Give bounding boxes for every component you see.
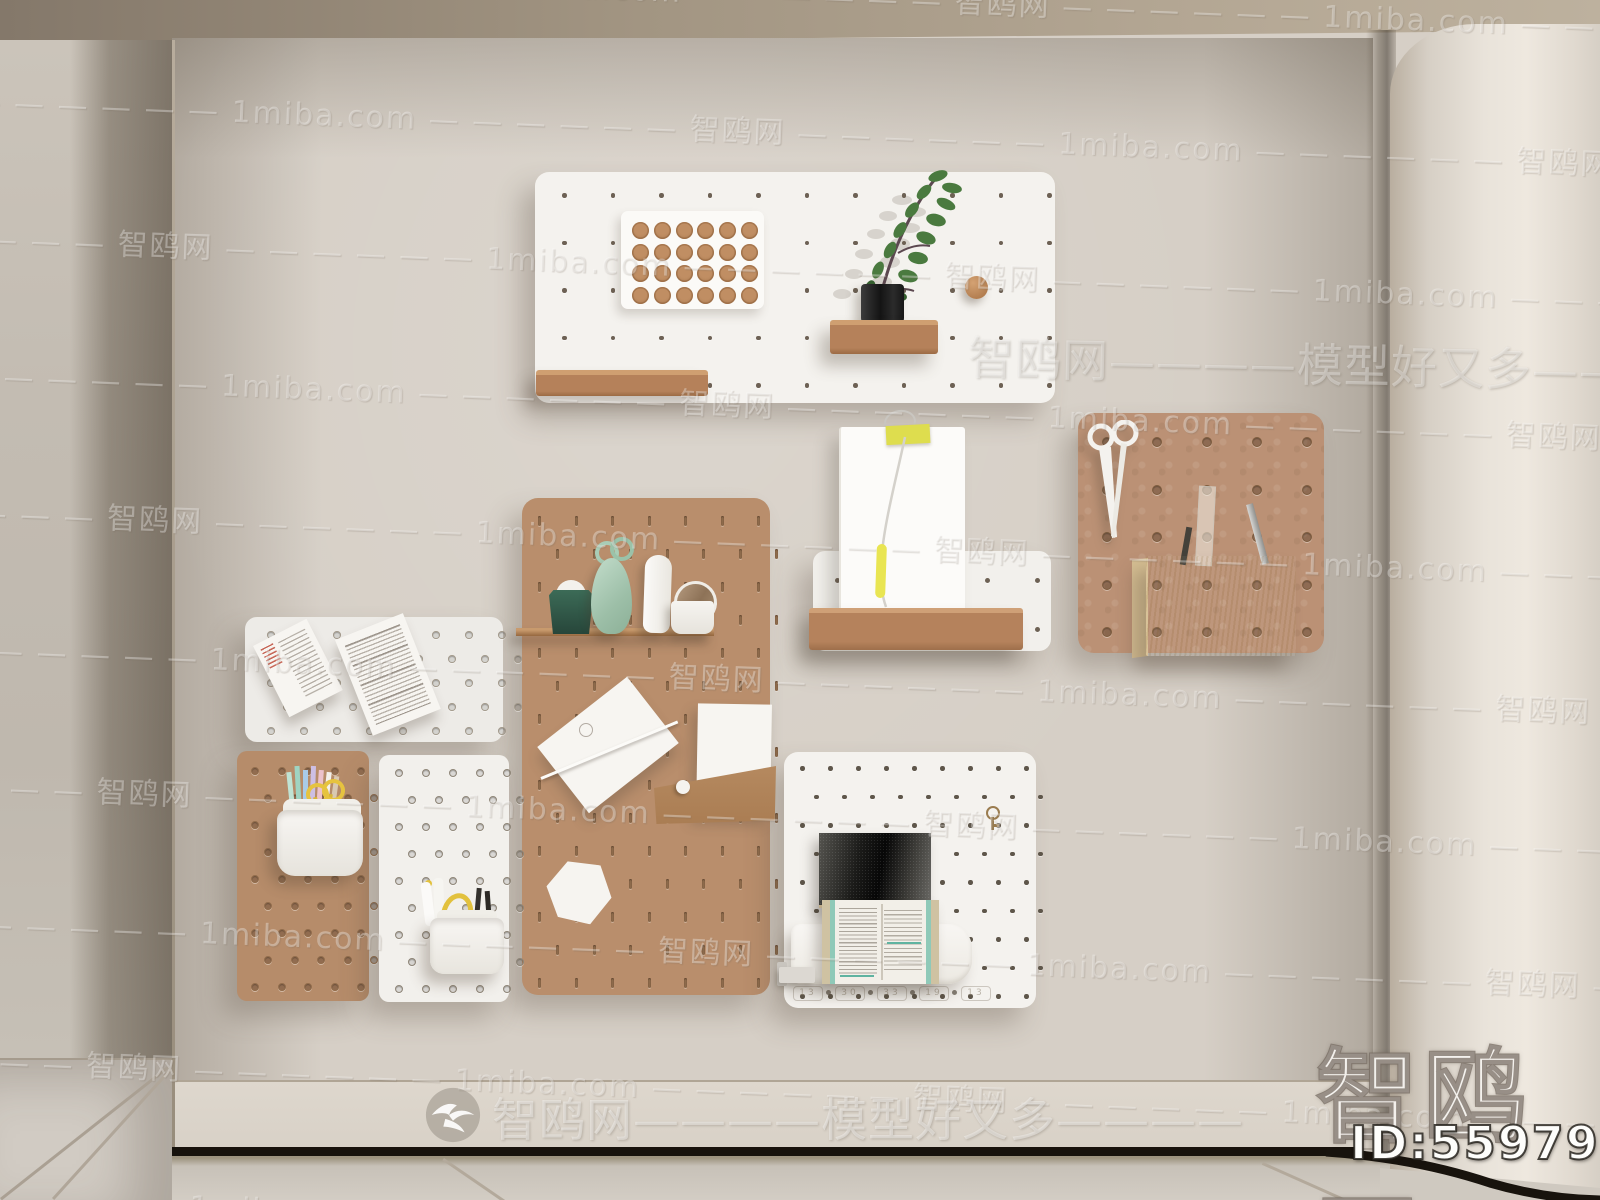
key-tooth	[994, 824, 999, 827]
key-hook	[986, 806, 1000, 834]
slot-pill-2: 30	[835, 986, 865, 1001]
white-gadget	[643, 555, 673, 634]
slot-pill-5: 13	[961, 986, 991, 1001]
open-book	[822, 900, 939, 984]
plant-pot	[861, 284, 904, 325]
slot-pill-4: 19	[919, 986, 949, 1001]
pocket-cup-front	[277, 810, 363, 876]
metal-notebook	[819, 833, 931, 908]
wood-ledge	[536, 370, 708, 396]
tray-brown	[809, 608, 1023, 650]
baseboard	[175, 1082, 1373, 1148]
slot-dot-4	[952, 990, 957, 995]
book-page-left-text	[839, 908, 877, 974]
left-floor-wall-line	[0, 1058, 172, 1060]
book-teal-highlight-a	[840, 975, 874, 977]
book-edge-right	[931, 900, 939, 984]
book-band-right-teal	[926, 900, 931, 984]
left-shadow-band	[70, 40, 174, 1062]
hanging-scissors	[1084, 420, 1146, 545]
pen-cup-front	[430, 918, 504, 974]
green-cup	[549, 590, 593, 634]
mirror-cup	[671, 601, 714, 634]
flap-pocket-button	[676, 780, 690, 794]
book-teal-highlight-b	[887, 942, 921, 944]
slot-dot-1	[826, 990, 831, 995]
book-band-left-teal	[830, 900, 835, 984]
book-spine	[881, 904, 883, 980]
slot-pill-1: 13	[793, 986, 823, 1001]
dot-sticker-sheet	[621, 211, 764, 309]
wood-box-organizer	[1146, 556, 1296, 656]
slot-pill-3: 33	[877, 986, 907, 1001]
slot-dot-3	[910, 990, 915, 995]
pot-shelf-wood	[830, 320, 938, 354]
pillar	[1390, 24, 1600, 1200]
product-render-scene: 13 30 33 19 13 1miba.com — — — — — — 智鸥网…	[0, 0, 1600, 1200]
book-edge-left	[822, 900, 830, 984]
hanging-cable	[855, 425, 935, 615]
pillar-floor-gap-curve	[1320, 1138, 1600, 1200]
cable-sleeve-yellow	[875, 544, 887, 598]
wood-knob	[965, 276, 988, 299]
book-page-right-text	[884, 910, 922, 972]
envelope-stamp-mark	[579, 723, 593, 737]
side-clamp-arm	[779, 967, 815, 983]
slot-dot-2	[868, 990, 873, 995]
wall-edge-line	[172, 40, 175, 1150]
